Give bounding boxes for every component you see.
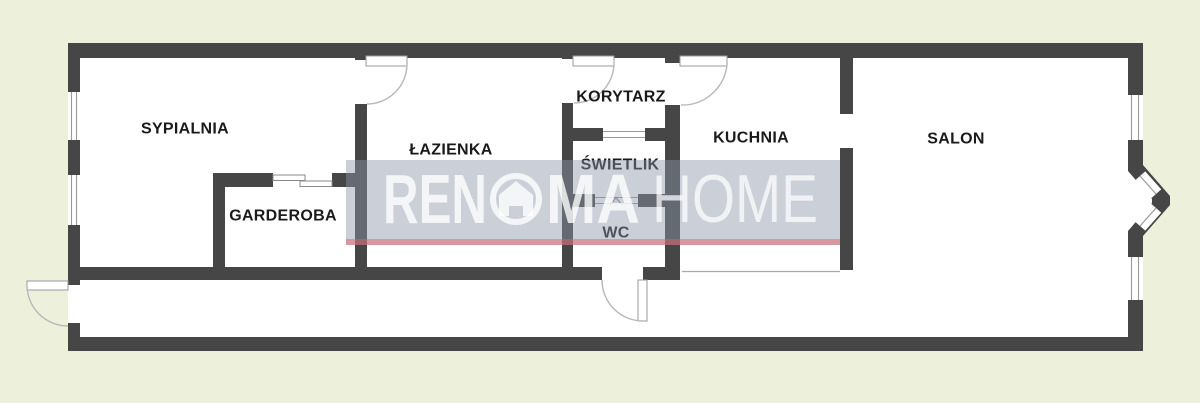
slider-panel-1: [273, 175, 305, 181]
wall-kuchnia-salon: [840, 58, 853, 270]
room-label-garderoba: GARDEROBA: [229, 208, 337, 225]
wall-garderoba-left: [213, 173, 225, 280]
doorway-lazienka: [355, 60, 367, 104]
doorway-korytarz: [562, 59, 573, 103]
floor-plan: SYPIALNIA ŁAZIENKA KORYTARZ ŚWIETLIK KUC…: [0, 0, 1200, 403]
door-leaf-korytarz: [573, 56, 614, 66]
room-label-lazienka: ŁAZIENKA: [409, 142, 492, 159]
watermark-text-home: HOME: [652, 161, 818, 237]
passage-kuchnia-salon: [840, 114, 853, 148]
door-leaf-lazienka: [366, 56, 407, 66]
door-leaf-entry: [27, 281, 68, 290]
room-label-kuchnia: KUCHNIA: [713, 130, 789, 147]
floor-plan-canvas: SYPIALNIA ŁAZIENKA KORYTARZ ŚWIETLIK KUC…: [0, 0, 1200, 403]
window-left-2: [68, 175, 80, 225]
window-left-1: [68, 92, 80, 140]
wall-hallway: [80, 267, 562, 280]
slider-panel-2: [300, 181, 332, 187]
window-right-2: [1128, 257, 1143, 300]
watermark-text-ma: MA: [546, 160, 640, 238]
door-arc-entry: [27, 285, 68, 326]
watermark-text-ren: REN: [383, 160, 487, 238]
room-label-sypialnia: SYPIALNIA: [141, 121, 229, 138]
watermark: REN MA HOME: [346, 160, 840, 245]
room-label-salon: SALON: [927, 131, 985, 148]
door-leaf-wc: [638, 280, 647, 321]
room-label-korytarz: KORYTARZ: [576, 89, 666, 106]
door-leaf-kuchnia: [680, 56, 727, 66]
doorway-wc: [602, 267, 643, 280]
doorway-entry: [68, 285, 80, 323]
window-korytarz-swietlik: [603, 128, 645, 141]
watermark-accent-line: [346, 239, 840, 245]
window-right-1: [1128, 95, 1143, 140]
doorway-kuchnia: [665, 63, 680, 105]
